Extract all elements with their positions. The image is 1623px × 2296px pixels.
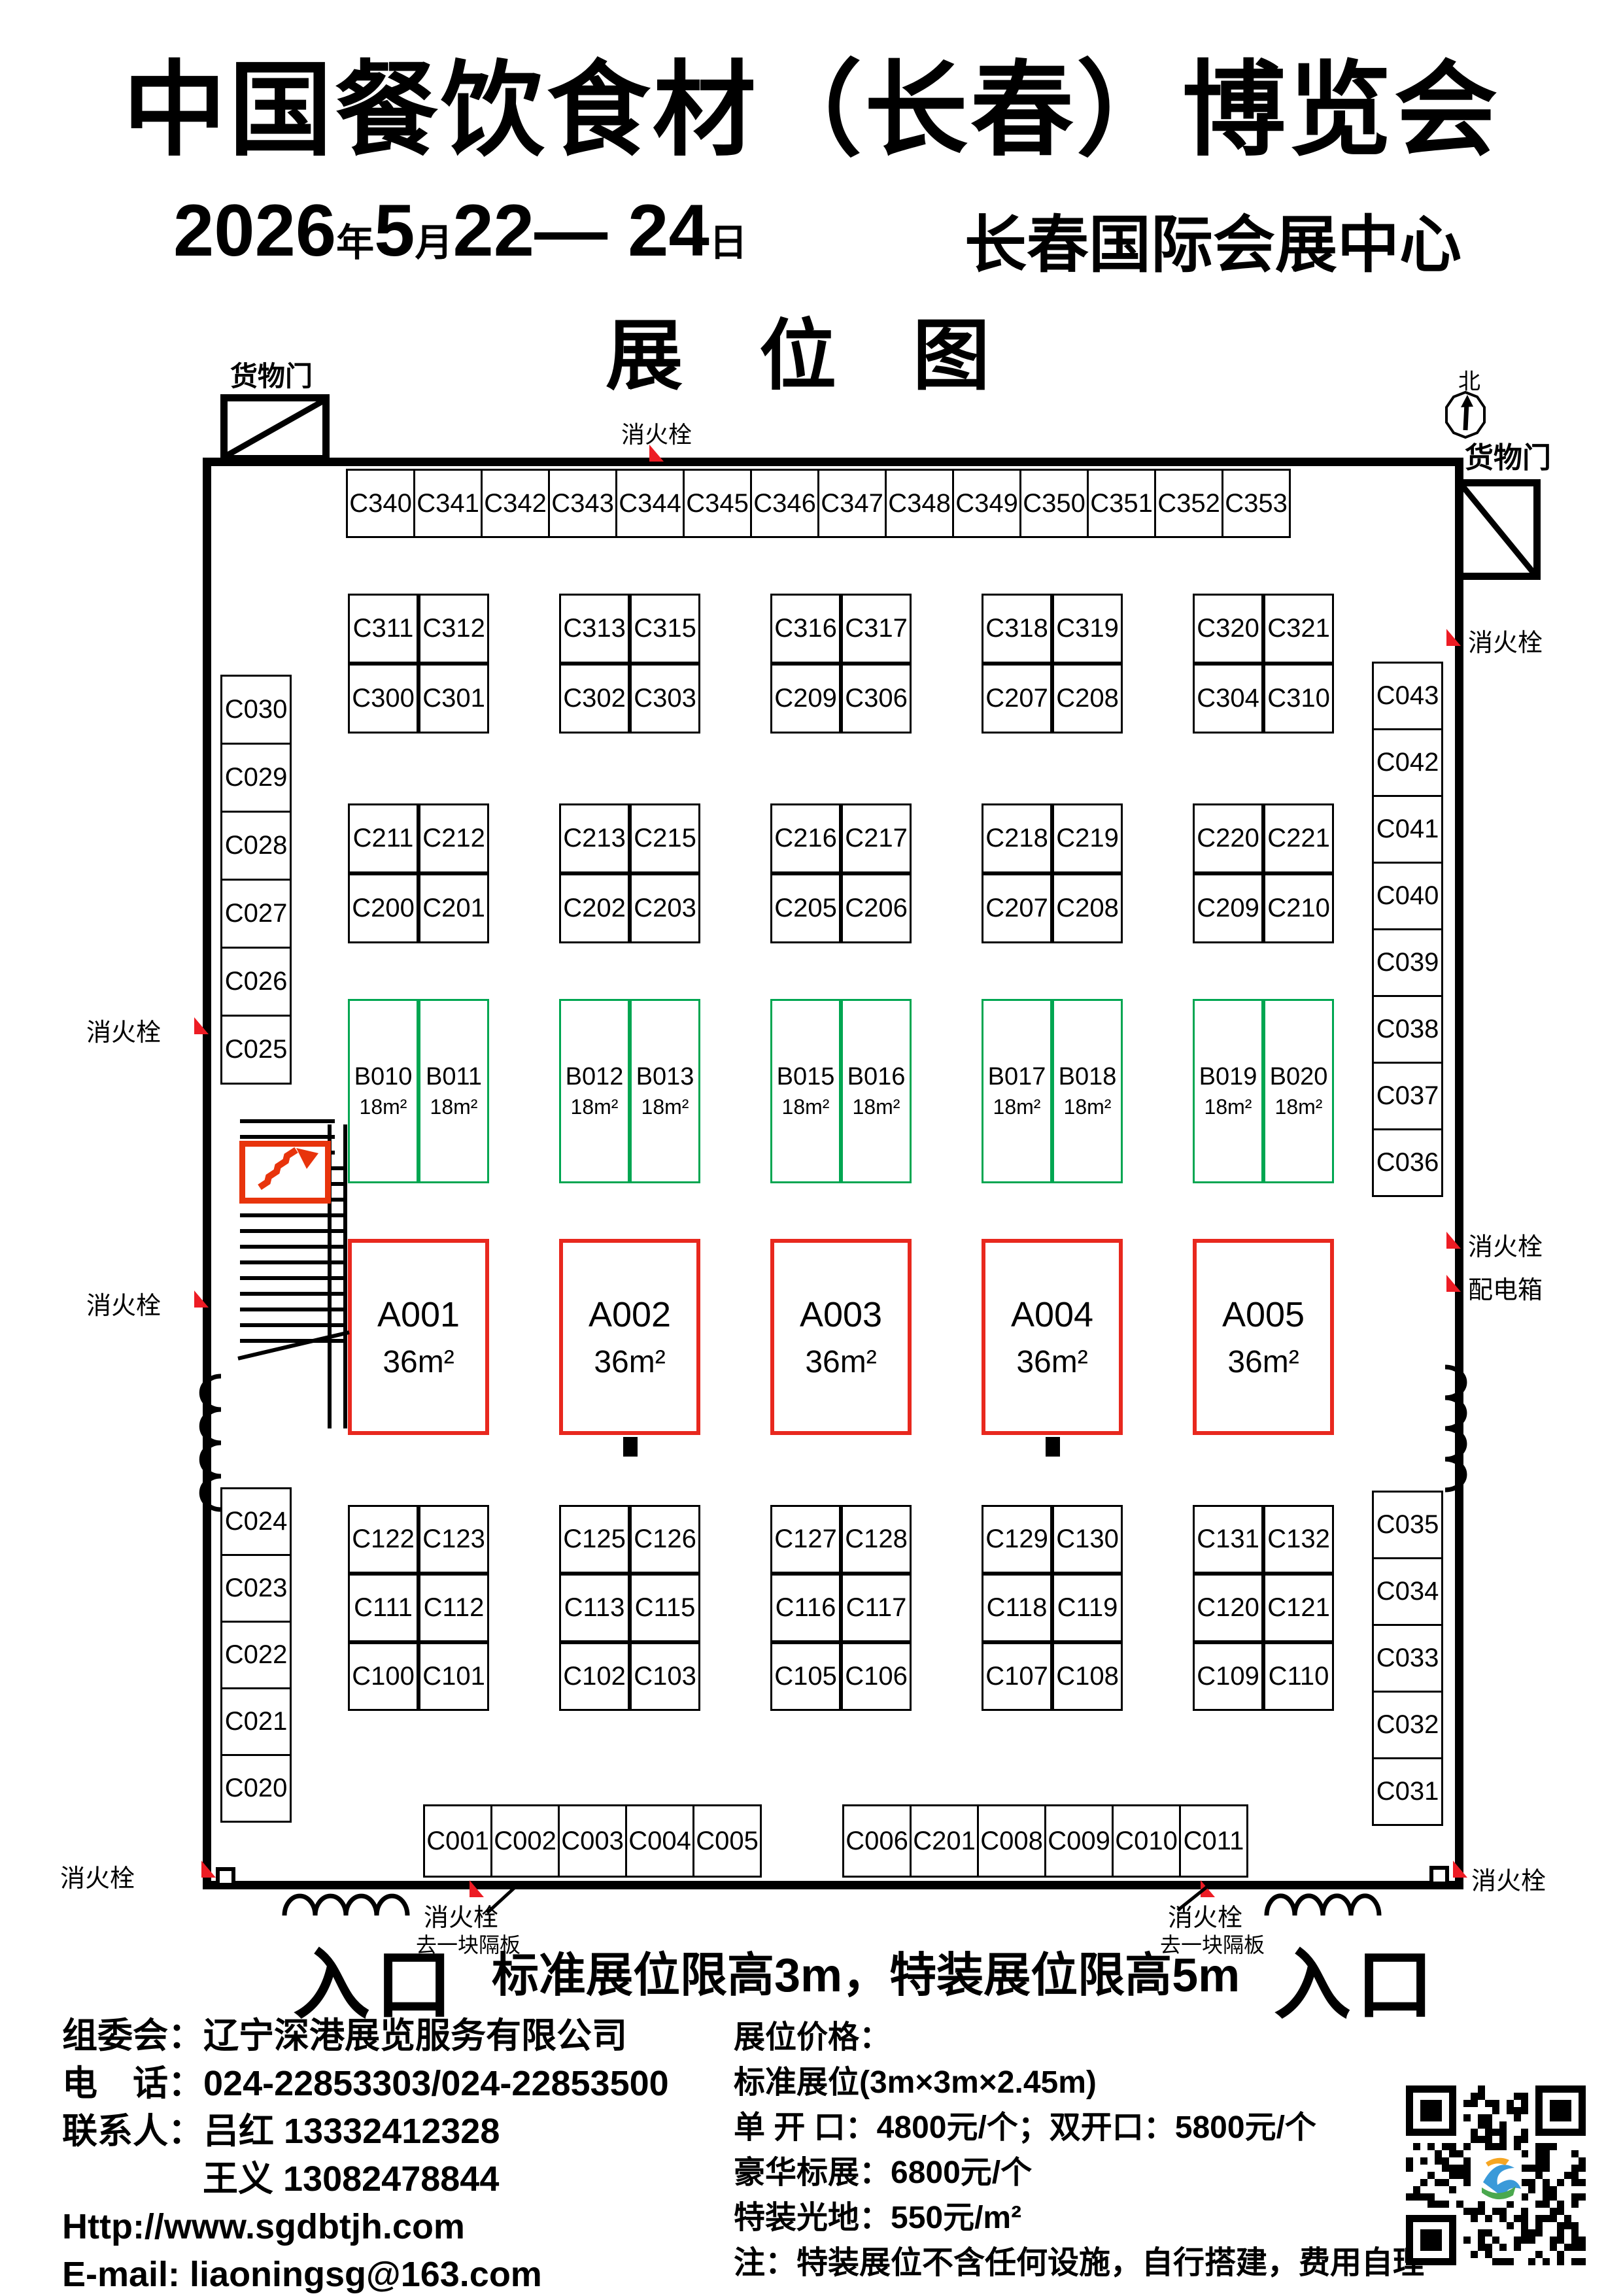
booth-block: C127C128C116C117C105C106: [770, 1505, 912, 1711]
booth: C313: [559, 594, 630, 664]
booth: C209: [770, 664, 841, 734]
booth: C030: [220, 675, 292, 745]
booth-area: 18m²: [430, 1095, 478, 1119]
booth: C207: [982, 664, 1052, 734]
booth: C207: [982, 873, 1052, 943]
booth-area: 18m²: [1204, 1095, 1252, 1119]
booth-area: 18m²: [641, 1095, 689, 1119]
booth: C209: [1193, 873, 1263, 943]
date-year: 2026: [173, 188, 336, 273]
fire-hydrant-label: 消火栓: [86, 1012, 161, 1048]
booth-row-bottom-right: C006C201C008C009C010C011: [844, 1804, 1248, 1878]
booth-area: 18m²: [853, 1095, 900, 1119]
booth: C128: [841, 1505, 912, 1574]
booth: C306: [841, 664, 912, 734]
booth: C031: [1372, 1757, 1443, 1826]
booth-id: B013: [636, 1063, 694, 1091]
booth: B01818m²: [1052, 999, 1123, 1183]
qr-code: [1405, 2084, 1588, 2267]
booth: C353: [1222, 469, 1291, 538]
booth: C111: [348, 1574, 419, 1642]
booth: C208: [1052, 664, 1123, 734]
booth: C127: [770, 1505, 841, 1574]
booth: C130: [1052, 1505, 1123, 1574]
price-info: 展位价格： 标准展位(3m×3m×2.45m) 单 开 口：4800元/个；双开…: [734, 2015, 1424, 2286]
booth-block: C318C319C207C208: [982, 594, 1123, 734]
pillar: [1046, 1437, 1060, 1457]
booth: C038: [1372, 995, 1443, 1064]
price-open: 单 开 口：4800元/个；双开口：5800元/个: [734, 2105, 1424, 2150]
booth-id: B016: [847, 1063, 906, 1091]
booth: C213: [559, 803, 630, 873]
booth-id: B012: [566, 1063, 624, 1091]
email-link: E-mail: liaoningsg@163.com: [62, 2251, 669, 2296]
booth-block: C131C132C120C121C109C110: [1193, 1505, 1334, 1711]
booth-area: 36m²: [383, 1344, 454, 1380]
booth: C341: [413, 469, 483, 538]
booth: C346: [750, 469, 819, 538]
page-title: 中国餐饮食材（长春）博览会: [0, 26, 1623, 176]
roll-door-coil: [190, 1373, 224, 1523]
booth: C112: [419, 1574, 489, 1642]
booth-area: 36m²: [1227, 1344, 1299, 1380]
booth: C348: [885, 469, 954, 538]
booth: C304: [1193, 664, 1263, 734]
booth: C036: [1372, 1128, 1443, 1197]
booth-block-b: B01918m²B02018m²: [1193, 999, 1334, 1183]
booth: C215: [630, 803, 700, 873]
booth: C202: [559, 873, 630, 943]
booth: C203: [630, 873, 700, 943]
booth: C035: [1372, 1491, 1443, 1559]
booth: C110: [1263, 1642, 1334, 1711]
fire-hydrant-label: 消火栓: [621, 416, 692, 450]
booth-area: 36m²: [1016, 1344, 1087, 1380]
booth: C352: [1154, 469, 1223, 538]
booth: C008: [977, 1804, 1046, 1878]
booth-area: 18m²: [993, 1095, 1041, 1119]
booth: C345: [683, 469, 752, 538]
booth-block: C311C312C300C301: [348, 594, 489, 734]
booth-block-b: B01018m²B01118m²: [348, 999, 489, 1183]
booth: B01718m²: [982, 999, 1052, 1183]
height-note: 标准展位限高3m，特装展位限高5m: [492, 1936, 1240, 2005]
roll-door-coil: [1263, 1884, 1384, 1921]
booth: C350: [1019, 469, 1089, 538]
phone-line: 电 话：024-22853303/024-22853500: [62, 2060, 669, 2108]
booth: C344: [615, 469, 685, 538]
booth: C221: [1263, 803, 1334, 873]
booth: C118: [982, 1574, 1052, 1642]
booth: C005: [692, 1804, 762, 1878]
price-deluxe: 豪华标展：6800元/个: [734, 2150, 1424, 2195]
booth-area: 36m²: [805, 1344, 876, 1380]
organizer-line: 组委会：辽宁深港展览服务有限公司: [62, 2012, 669, 2060]
booth: C101: [419, 1642, 489, 1711]
pillar: [623, 1437, 638, 1457]
cargo-door-left-label: 货物门: [230, 354, 313, 394]
booth: C347: [817, 469, 887, 538]
booth-block: C216C217C205C206: [770, 803, 912, 943]
booth-block: C320C321C304C310: [1193, 594, 1334, 734]
fire-hydrant-label: 消火栓: [1471, 1861, 1546, 1897]
booth: C212: [419, 803, 489, 873]
booth-col-left-upper: C030C029C028C027C026C025: [220, 677, 292, 1085]
booth-block: C125C126C113C115C102C103: [559, 1505, 700, 1711]
fire-hydrant-label: 消火栓: [1168, 1897, 1242, 1933]
price-raw-space: 特装光地：550元/m²: [734, 2195, 1424, 2240]
event-date: 2026 年 5 月 22— 24 日: [173, 188, 747, 273]
booth-area: 18m²: [360, 1095, 407, 1119]
booth: C312: [419, 594, 489, 664]
booth: C006: [842, 1804, 912, 1878]
booth: B01018m²: [348, 999, 419, 1183]
booth-id: B017: [988, 1063, 1046, 1091]
booth: C351: [1087, 469, 1156, 538]
booth: C300: [348, 664, 419, 734]
booth-col-right-upper: C043C042C041C040C039C038C037C036: [1372, 664, 1443, 1197]
booth-id: A002: [589, 1294, 671, 1335]
fire-hydrant-label: 消火栓: [86, 1285, 161, 1321]
booth: C302: [559, 664, 630, 734]
booth-area: 18m²: [571, 1095, 619, 1119]
booth: C122: [348, 1505, 419, 1574]
booth: C129: [982, 1505, 1052, 1574]
booth-id: B015: [777, 1063, 835, 1091]
booth-block: C213C215C202C203: [559, 803, 700, 943]
booth: C211: [348, 803, 419, 873]
booth: C218: [982, 803, 1052, 873]
floor-plan: C340C341C342C343C344C345C346C347C348C349…: [203, 458, 1463, 1889]
booth: C301: [419, 664, 489, 734]
booth-row-bottom-left: C001C002C003C004C005: [425, 1804, 762, 1878]
booth: C342: [481, 469, 550, 538]
booth: C116: [770, 1574, 841, 1642]
booth: C201: [910, 1804, 979, 1878]
booth: C303: [630, 664, 700, 734]
booth: C121: [1263, 1574, 1334, 1642]
booth: C210: [1263, 873, 1334, 943]
booth: C004: [625, 1804, 694, 1878]
booth: C219: [1052, 803, 1123, 873]
booth: C113: [559, 1574, 630, 1642]
booth: C034: [1372, 1557, 1443, 1626]
booth: C216: [770, 803, 841, 873]
booth: C043: [1372, 662, 1443, 730]
booth: B01618m²: [841, 999, 912, 1183]
hydrant-box-icon: [1429, 1866, 1449, 1885]
booth: C011: [1179, 1804, 1248, 1878]
booth: C340: [346, 469, 415, 538]
booth: C317: [841, 594, 912, 664]
booth: B01218m²: [559, 999, 630, 1183]
booth: C103: [630, 1642, 700, 1711]
booth-id: A005: [1222, 1294, 1305, 1335]
booth: C025: [220, 1015, 292, 1085]
booth: C310: [1263, 664, 1334, 734]
booth-block-b: B01518m²B01618m²: [770, 999, 912, 1183]
booth: C108: [1052, 1642, 1123, 1711]
booth: C026: [220, 947, 292, 1017]
booth-row-a: A00136m²A00236m²A00336m²A00436m²A00536m²: [348, 1239, 1334, 1435]
booth: C042: [1372, 728, 1443, 797]
cargo-door-left-icon: [220, 394, 330, 462]
booth-block: C122C123C111C112C100C101: [348, 1505, 489, 1711]
booth-area: 18m²: [782, 1095, 830, 1119]
website-link: Http://www.sgdbtjh.com: [62, 2203, 669, 2251]
booth-block: C316C317C209C306: [770, 594, 912, 734]
booth-id: B010: [354, 1063, 413, 1091]
booth-area: 18m²: [1064, 1095, 1112, 1119]
booth: A00536m²: [1193, 1239, 1334, 1435]
booth-block: C218C219C207C208: [982, 803, 1123, 943]
booth: C102: [559, 1642, 630, 1711]
booth: C208: [1052, 873, 1123, 943]
booth: A00336m²: [770, 1239, 912, 1435]
booth: C319: [1052, 594, 1123, 664]
booth: C315: [630, 594, 700, 664]
booth: C132: [1263, 1505, 1334, 1574]
booth: C027: [220, 879, 292, 949]
booth: C010: [1112, 1804, 1181, 1878]
subtitle-row: 2026 年 5 月 22— 24 日 长春国际会展中心: [0, 188, 1623, 280]
booth: C126: [630, 1505, 700, 1574]
booth: B01118m²: [419, 999, 489, 1183]
booth-id: A001: [377, 1294, 460, 1335]
booth: C040: [1372, 862, 1443, 930]
booth-col-right-lower: C035C034C033C032C031: [1372, 1493, 1443, 1826]
booth: C100: [348, 1642, 419, 1711]
booth: C029: [220, 743, 292, 813]
booth: C217: [841, 803, 912, 873]
booth: C039: [1372, 928, 1443, 997]
booth: C206: [841, 873, 912, 943]
booth: C131: [1193, 1505, 1263, 1574]
booth-id: B011: [426, 1063, 482, 1091]
booth: C022: [220, 1621, 292, 1689]
booth: C343: [548, 469, 617, 538]
price-standard: 标准展位(3m×3m×2.45m): [734, 2060, 1424, 2105]
booth: C311: [348, 594, 419, 664]
booth: C220: [1193, 803, 1263, 873]
booth-id: B019: [1199, 1063, 1257, 1091]
booth-block-b: B01218m²B01318m²: [559, 999, 700, 1183]
booth-block: C129C130C118C119C107C108: [982, 1505, 1123, 1711]
booth: C002: [490, 1804, 560, 1878]
date-month-suffix: 月: [415, 212, 453, 267]
fire-hydrant-label: 消火栓: [60, 1858, 135, 1894]
booth: B01318m²: [630, 999, 700, 1183]
hydrant-box-icon: [216, 1867, 235, 1887]
booth: C123: [419, 1505, 489, 1574]
roll-door-coil: [281, 1884, 419, 1921]
booth: C320: [1193, 594, 1263, 664]
booth: C318: [982, 594, 1052, 664]
booth: B02018m²: [1263, 999, 1334, 1183]
booth: C120: [1193, 1574, 1263, 1642]
booth: A00436m²: [982, 1239, 1123, 1435]
booth: C003: [558, 1804, 627, 1878]
booth: C321: [1263, 594, 1334, 664]
fire-hydrant-label: 消火栓: [1468, 1226, 1543, 1262]
booth-block: C313C315C302C303: [559, 594, 700, 734]
booth: C200: [348, 873, 419, 943]
cargo-door-right-label: 货物门: [1465, 434, 1551, 476]
booth: C021: [220, 1687, 292, 1756]
booth-id: B018: [1059, 1063, 1117, 1091]
booth: C024: [220, 1487, 292, 1556]
booth: C032: [1372, 1691, 1443, 1759]
contact-line-2: 王义 13082478844: [62, 2155, 669, 2203]
booth: A00236m²: [559, 1239, 700, 1435]
booth-id: A003: [800, 1294, 882, 1335]
booth: C115: [630, 1574, 700, 1642]
booth: C105: [770, 1642, 841, 1711]
date-days: 22— 24: [453, 188, 709, 273]
date-year-suffix: 年: [336, 212, 374, 267]
booth: C119: [1052, 1574, 1123, 1642]
booth-row-top: C340C341C342C343C344C345C346C347C348C349…: [348, 469, 1291, 538]
organizer-info: 组委会：辽宁深港展览服务有限公司 电 话：024-22853303/024-22…: [62, 2012, 669, 2296]
booth: C117: [841, 1574, 912, 1642]
booth-block: C211C212C200C201: [348, 803, 489, 943]
booth-area: 36m²: [594, 1344, 665, 1380]
booth: C205: [770, 873, 841, 943]
booth: C028: [220, 811, 292, 881]
booth-block-b: B01718m²B01818m²: [982, 999, 1123, 1183]
price-note: 注：特装展位不含任何设施，自行搭建，费用自理: [734, 2240, 1424, 2286]
date-month: 5: [374, 188, 415, 273]
booth: C020: [220, 1754, 292, 1823]
price-title: 展位价格：: [734, 2015, 1424, 2060]
booth: C107: [982, 1642, 1052, 1711]
fire-hydrant-label: 消火栓: [1468, 622, 1543, 658]
booth: C033: [1372, 1624, 1443, 1693]
booth: B01918m²: [1193, 999, 1263, 1183]
booth: C316: [770, 594, 841, 664]
contact-line-1: 联系人：吕红 13332412328: [62, 2108, 669, 2155]
booth: B01518m²: [770, 999, 841, 1183]
escalator-icon: [239, 1141, 331, 1204]
venue-name: 长春国际会展中心: [965, 195, 1461, 284]
booth-area: 18m²: [1275, 1095, 1323, 1119]
booth-col-left-lower: C024C023C022C021C020: [220, 1489, 292, 1823]
cargo-door-right-icon: [1456, 479, 1541, 580]
booth: C037: [1372, 1062, 1443, 1130]
booth: C349: [952, 469, 1021, 538]
roll-door-coil: [1443, 1364, 1477, 1504]
booth: C023: [220, 1554, 292, 1623]
booth: C125: [559, 1505, 630, 1574]
booth-block: C220C221C209C210: [1193, 803, 1334, 943]
date-day-suffix: 日: [709, 212, 747, 267]
booth: C201: [419, 873, 489, 943]
booth-id: B020: [1270, 1063, 1328, 1091]
booth: C001: [423, 1804, 492, 1878]
booth: C106: [841, 1642, 912, 1711]
booth: C041: [1372, 795, 1443, 864]
booth: C109: [1193, 1642, 1263, 1711]
power-box-label: 配电箱: [1468, 1270, 1543, 1306]
booth-map-poster: 中国餐饮食材（长春）博览会 2026 年 5 月 22— 24 日 长春国际会展…: [0, 0, 1623, 2296]
booth: C009: [1044, 1804, 1114, 1878]
booth-id: A004: [1011, 1294, 1093, 1335]
booth: A00136m²: [348, 1239, 489, 1435]
